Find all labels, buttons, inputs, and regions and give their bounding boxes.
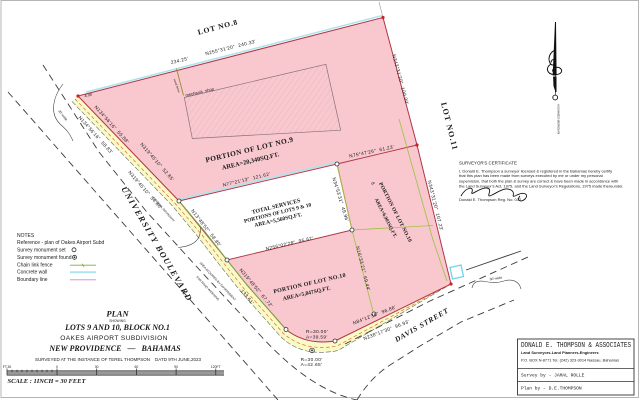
svg-text:Donald E. Thompson Reg. No. 03: Donald E. Thompson Reg. No. 037 [459,197,522,202]
svg-text:FT.30: FT.30 [3,365,12,369]
svg-text:120FT: 120FT [211,365,221,369]
svg-text:DONALD E. THOMPSON & ASSOCIATE: DONALD E. THOMPSON & ASSOCIATES [521,342,631,350]
svg-text:Reference - plan of Oakes Airp: Reference - plan of Oakes Airport Subd [17,240,104,246]
svg-text:NEW PROVIDENCE — BAHAMAS: NEW PROVIDENCE — BAHAMAS [48,344,181,353]
svg-text:SCALE : 1INCH = 30 FEET: SCALE : 1INCH = 30 FEET [8,378,87,385]
svg-text:SURVEYED AT THE INSTANCE OF TE: SURVEYED AT THE INSTANCE OF TEREL THOMPS… [35,357,201,362]
svg-text:Survey by - JAMAL ROLLE: Survey by - JAMAL ROLLE [521,373,585,379]
svg-text:90: 90 [174,365,178,369]
svg-text:A=42.65': A=42.65' [301,362,323,368]
svg-text:OAKES AIRPORT SUBDIVISION: OAKES AIRPORT SUBDIVISION [60,335,168,342]
svg-text:A=39.59': A=39.59' [306,335,328,341]
svg-text:ASSUMED MERIDIAN: ASSUMED MERIDIAN [557,104,561,134]
svg-text:Boundary line: Boundary line [17,277,48,283]
svg-text:Chain link fence: Chain link fence [17,263,53,269]
svg-text:that this plan has been made f: that this plan has been made from survey… [459,173,603,178]
svg-text:Land Surveyors-Land Planners-E: Land Surveyors-Land Planners-Engineers [521,350,599,355]
svg-text:P.O. BOX N-8771 Tel. (242) 323: P.O. BOX N-8771 Tel. (242) 323-3014 Nass… [521,358,619,363]
svg-text:Concrete wall: Concrete wall [17,270,47,276]
svg-text:Survey monument set: Survey monument set [17,247,66,253]
svg-text:0: 0 [56,365,58,369]
svg-text:NOTES: NOTES [17,233,35,239]
svg-text:Plan by - D.E.THOMPSON: Plan by - D.E.THOMPSON [521,386,582,392]
svg-text:PLAN: PLAN [106,309,129,319]
svg-text:30: 30 [95,365,99,369]
svg-text:60: 60 [135,365,139,369]
svg-text:SURVEYOR'S CERTIFICATE: SURVEYOR'S CERTIFICATE [459,161,517,166]
svg-text:LOTS 9 AND 10, BLOCK NO.1: LOTS 9 AND 10, BLOCK NO.1 [64,323,170,332]
svg-text:Survey monument found: Survey monument found [17,255,72,261]
svg-text:R=30.00': R=30.00' [306,329,328,335]
svg-text:the Land Surveyor's Act, 1975,: the Land Surveyor's Act, 1975, and the L… [459,184,624,189]
